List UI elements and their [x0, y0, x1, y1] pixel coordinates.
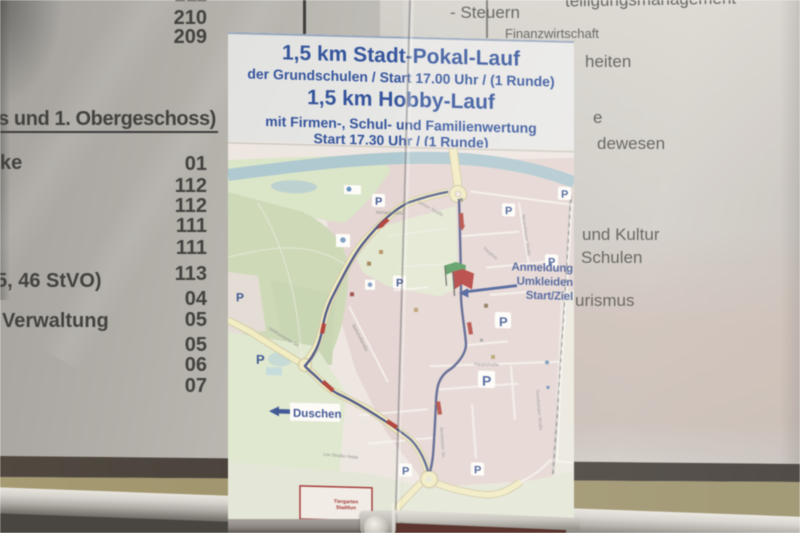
svg-text:Mühlenstraße: Mühlenstraße	[376, 210, 404, 216]
svg-text:Stadtlun: Stadtlun	[336, 505, 356, 512]
svg-text:P: P	[375, 196, 382, 208]
svg-text:P: P	[236, 290, 244, 304]
svg-text:Duschen: Duschen	[293, 408, 342, 421]
svg-text:P: P	[256, 352, 265, 367]
